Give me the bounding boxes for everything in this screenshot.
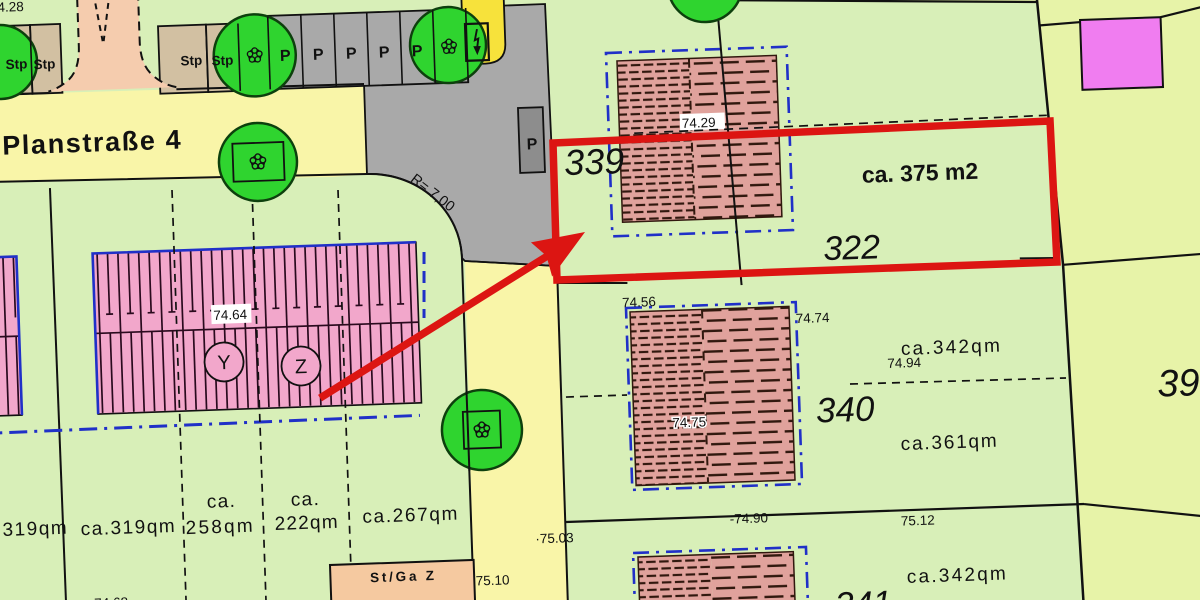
svg-text:ca.267qm: ca.267qm [362,504,458,528]
svg-text:341: 341 [834,584,892,600]
svg-text:222qm: 222qm [274,512,338,535]
svg-text:74.75: 74.75 [672,414,706,430]
svg-text:75.12: 75.12 [901,512,935,528]
svg-text:P: P [346,45,358,62]
svg-text:74.74: 74.74 [796,310,831,326]
svg-text:P: P [526,136,538,153]
svg-text:74.29: 74.29 [682,115,716,131]
svg-text:Stp: Stp [33,56,55,72]
svg-text:398: 398 [1157,361,1200,405]
svg-text:Stp: Stp [5,56,27,72]
svg-text:ca.319qm: ca.319qm [80,516,175,540]
svg-text:P: P [412,43,424,60]
svg-text:ca.361qm: ca.361qm [900,431,997,455]
svg-text:ca.: ca. [290,489,319,511]
svg-text:ca.319qm: ca.319qm [0,518,67,542]
svg-text:P: P [280,48,292,65]
svg-text:Z: Z [295,356,308,378]
svg-text:74.68: 74.68 [94,595,128,600]
svg-text:339: 339 [563,140,624,183]
svg-text:ca.342qm: ca.342qm [901,336,1001,360]
svg-text:P: P [313,46,325,63]
svg-text:258qm: 258qm [185,516,253,539]
svg-text:340: 340 [815,389,875,430]
svg-text:·75.03: ·75.03 [535,530,574,546]
svg-text:ca. 375 m2: ca. 375 m2 [861,158,978,188]
svg-text:ca.342qm: ca.342qm [907,564,1007,588]
svg-text:74.28: 74.28 [0,0,24,15]
svg-text:75.10: 75.10 [475,572,509,588]
svg-text:Stp: Stp [211,53,233,69]
svg-text:74.56: 74.56 [622,294,656,310]
svg-text:-74.90: -74.90 [729,510,768,526]
svg-text:Y: Y [217,352,231,374]
svg-text:ca.: ca. [206,491,235,513]
svg-text:P: P [379,44,391,61]
svg-text:Stp: Stp [180,53,202,69]
svg-text:322: 322 [823,228,881,268]
svg-text:74.64: 74.64 [213,307,248,323]
